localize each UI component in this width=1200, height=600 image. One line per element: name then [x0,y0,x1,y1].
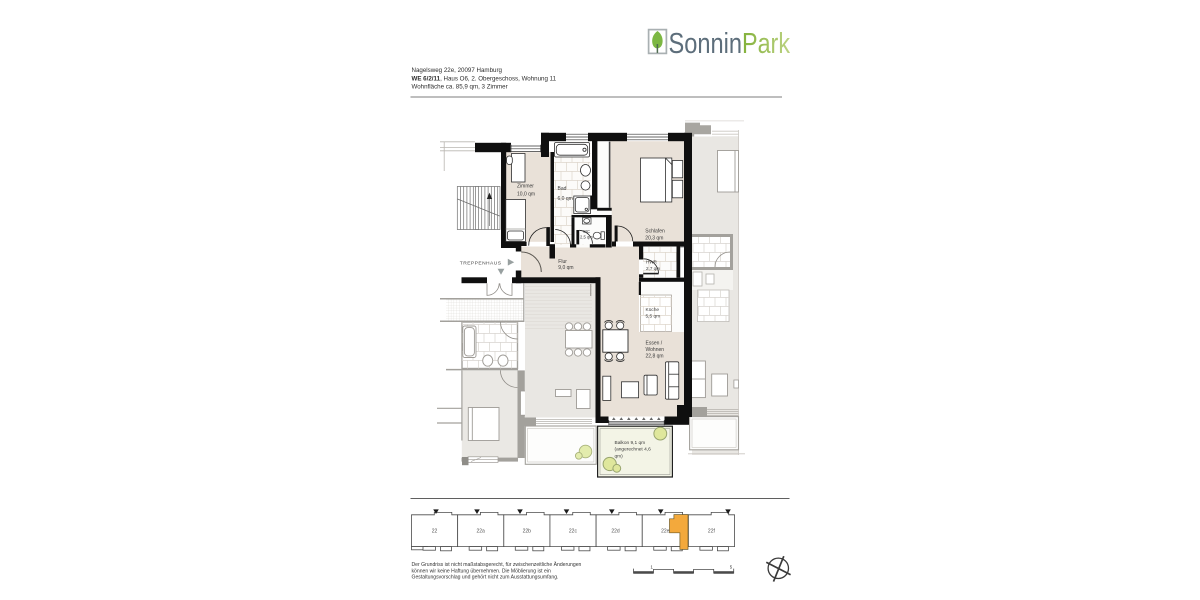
svg-text:22b: 22b [523,529,532,535]
svg-text:22e: 22e [661,529,670,535]
svg-text:Schlafen: Schlafen [645,228,665,234]
svg-text:22d: 22d [611,529,620,535]
svg-text:Sonnin: Sonnin [669,28,743,60]
svg-text:Bad: Bad [558,186,567,192]
svg-text:22a: 22a [476,529,485,535]
svg-text:Wohnen: Wohnen [646,347,665,353]
svg-text:TREPPENHAUS: TREPPENHAUS [460,261,502,267]
svg-text:9,0 qm: 9,0 qm [558,265,573,271]
svg-text:Balkon 9,1 qm: Balkon 9,1 qm [615,440,646,446]
svg-text:WE 6/2/11, Haus O6, 2. Oberges: WE 6/2/11, Haus O6, 2. Obergeschoss, Woh… [412,75,557,82]
svg-text:(angerechnet 4,6: (angerechnet 4,6 [615,447,652,453]
svg-text:2,5 qm: 2,5 qm [580,234,593,239]
svg-text:Wohnfläche ca. 85,9 qm, 3 Zimm: Wohnfläche ca. 85,9 qm, 3 Zimmer [412,84,508,91]
svg-text:Zimmer: Zimmer [517,183,534,189]
svg-text:22,8 qm: 22,8 qm [646,353,664,359]
svg-text:HWR: HWR [646,260,658,265]
svg-text:20,3 qm: 20,3 qm [645,236,663,242]
svg-text:Der Grundriss ist nicht maßsta: Der Grundriss ist nicht maßstabsgerecht,… [412,561,582,568]
svg-text:qm): qm) [615,453,624,459]
svg-text:Nagelsweg 22e, 20097 Hamburg: Nagelsweg 22e, 20097 Hamburg [412,67,503,74]
svg-text:Essen /: Essen / [646,341,663,347]
svg-text:22: 22 [432,529,438,535]
svg-text:22f: 22f [708,529,716,535]
svg-text:10,0 qm: 10,0 qm [517,192,535,198]
svg-text:Gestaltungsvorschlag und gehör: Gestaltungsvorschlag und gehört nicht zu… [412,575,559,581]
svg-text:22c: 22c [569,529,578,535]
svg-text:5,5 qm: 5,5 qm [646,314,661,320]
svg-text:2,7 qm: 2,7 qm [646,266,660,271]
svg-text:6,0 qm: 6,0 qm [558,196,573,202]
svg-text:Park: Park [742,28,791,60]
svg-text:können wir keine Haftung übern: können wir keine Haftung übernehmen. Die… [412,568,551,574]
svg-text:Küche: Küche [646,307,660,313]
